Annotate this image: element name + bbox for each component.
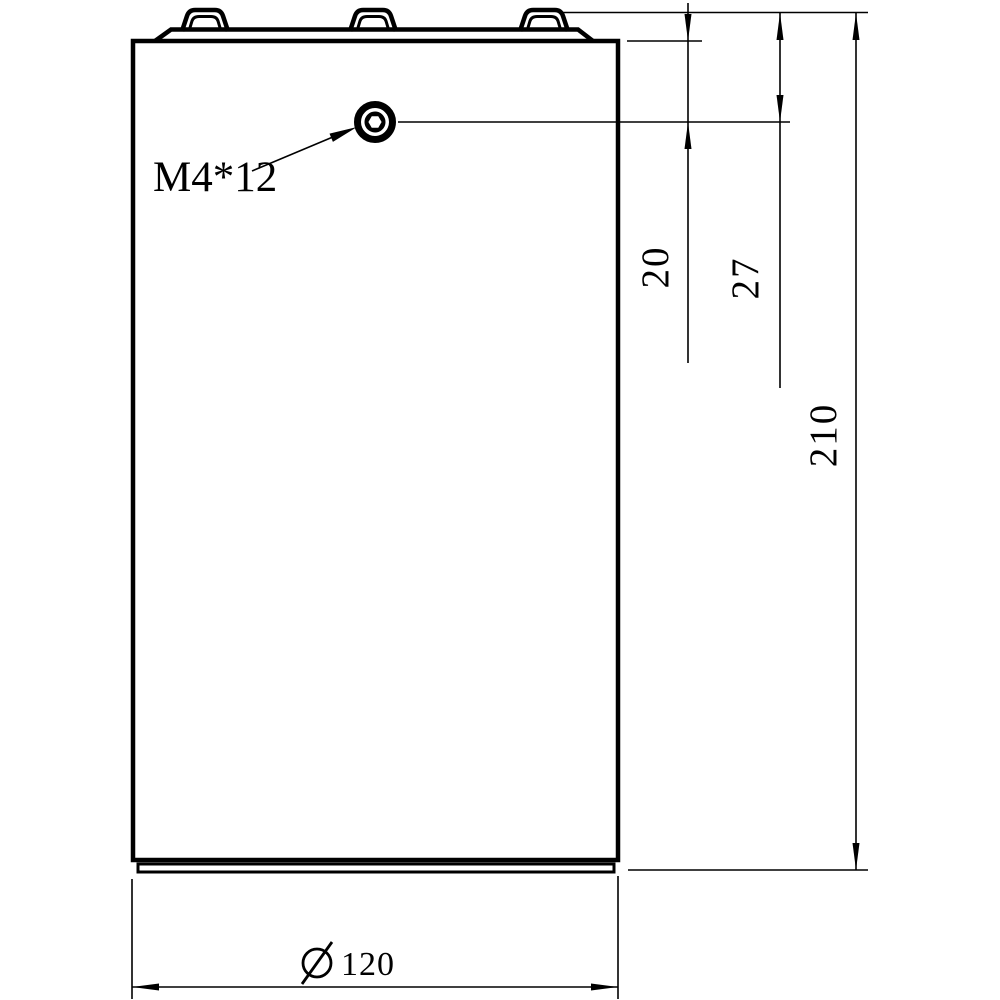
bottom-rim xyxy=(138,864,614,872)
dimension-20: 20 xyxy=(634,3,692,363)
drawing-canvas: M4*12 20 27 210 120 xyxy=(0,0,1000,1000)
arrowhead-down-icon xyxy=(853,843,860,870)
screw-outer-ring xyxy=(358,105,393,140)
diameter-symbol-icon xyxy=(302,942,332,984)
dimension-label-210: 210 xyxy=(802,403,845,468)
screw-callout-label: M4*12 xyxy=(153,154,277,201)
engineering-drawing: M4*12 20 27 210 120 xyxy=(0,0,1000,1000)
arrowhead-up-icon xyxy=(777,13,784,40)
leader-arrowhead xyxy=(330,127,358,142)
arrowhead-down-icon xyxy=(685,14,692,41)
arrowhead-up-icon xyxy=(685,122,692,149)
screw-hex-socket xyxy=(367,115,383,129)
dimension-210: 210 xyxy=(802,13,860,870)
arrowhead-up-icon xyxy=(853,13,860,40)
hex-socket-screw-icon xyxy=(358,105,393,140)
dimension-label-120: 120 xyxy=(341,946,395,983)
arrowhead-right-icon xyxy=(591,984,618,991)
arrowhead-down-icon xyxy=(777,95,784,122)
dimension-diameter-120: 120 xyxy=(132,942,618,991)
dimension-27: 27 xyxy=(724,13,784,388)
arrowhead-left-icon xyxy=(132,984,159,991)
dimension-label-27: 27 xyxy=(724,257,767,300)
dimension-label-20: 20 xyxy=(634,246,677,289)
